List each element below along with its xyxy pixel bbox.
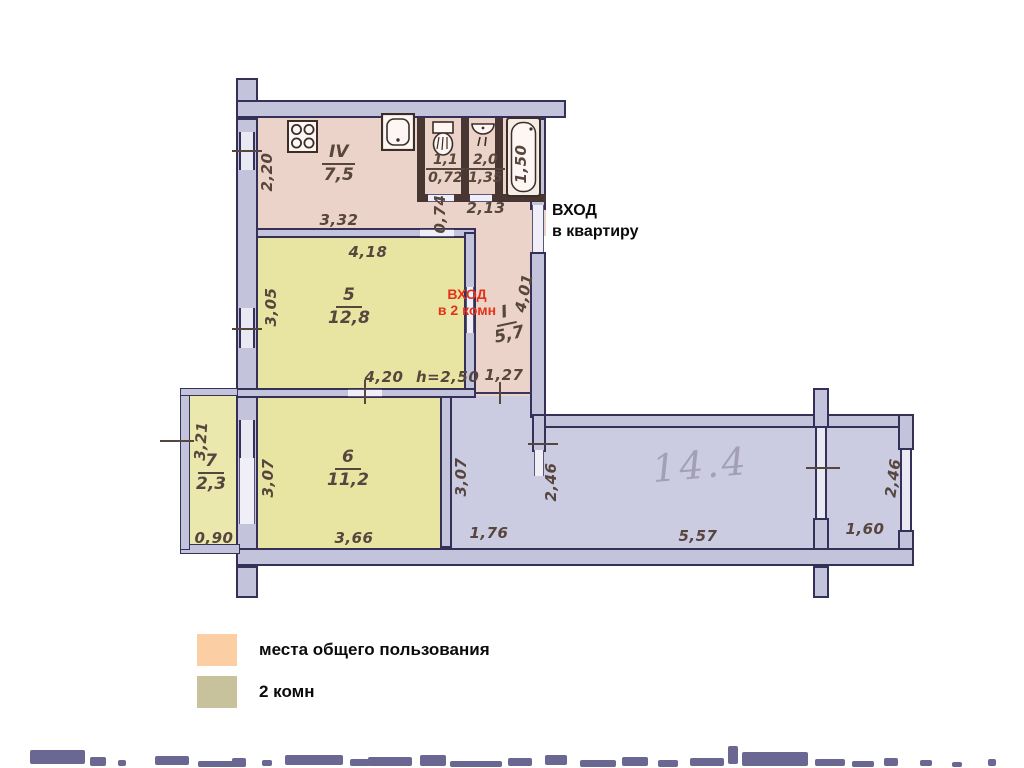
legend-swatch-rooms xyxy=(197,676,237,708)
washroom-label: 2,0 1,35 xyxy=(466,152,505,188)
balcony-block-window xyxy=(239,420,255,458)
room-number: 5 xyxy=(336,286,362,308)
entrance-apartment-line1: ВХОД xyxy=(552,201,639,222)
dim-3-32: 3,32 xyxy=(317,211,361,229)
wc-value-bottom: 0,72 xyxy=(428,170,463,188)
balcony-door xyxy=(239,458,255,524)
entrance-apartment-line2: в квартиру xyxy=(552,222,639,243)
dimension-tick xyxy=(806,467,840,469)
scan-artifact xyxy=(155,756,189,765)
scan-artifact xyxy=(742,752,808,766)
sink-icon xyxy=(381,113,415,151)
room6-label: 6 11,2 xyxy=(327,448,369,491)
wall-balcony-left xyxy=(180,388,190,550)
room-area: 7,5 xyxy=(324,165,354,186)
threshold-corridor-hall xyxy=(474,392,532,394)
dim-1-27: 1,27 xyxy=(482,366,526,384)
scan-artifact xyxy=(580,760,616,767)
room-number: 6 xyxy=(335,448,361,470)
dim-3-66: 3,66 xyxy=(332,529,376,547)
scan-artifact xyxy=(728,746,738,764)
legend-item-common: места общего пользования xyxy=(197,634,490,666)
dim-h-2-50: h=2,50 xyxy=(416,368,472,386)
scan-artifact xyxy=(285,755,343,765)
stove-icon xyxy=(287,120,318,153)
wall-room6-hall xyxy=(440,396,452,548)
legend-label-rooms: 2 комн xyxy=(259,682,314,702)
wc-label: 1,1 0,72 xyxy=(426,152,465,188)
dim-4-20: 4,20 xyxy=(362,368,406,386)
scan-artifact xyxy=(350,759,370,766)
scan-artifact xyxy=(545,755,567,765)
room5-label: 5 12,8 xyxy=(328,286,370,329)
dim-3-07-room6: 3,07 xyxy=(259,456,277,500)
room-area: 12,8 xyxy=(328,308,370,329)
scan-artifact xyxy=(952,762,962,767)
wall-bottom-left-stub xyxy=(236,566,258,598)
wall-right-top-stub xyxy=(898,414,914,450)
legend-swatch-common xyxy=(197,634,237,666)
dim-1-76: 1,76 xyxy=(467,524,511,542)
legend-item-rooms: 2 комн xyxy=(197,676,314,708)
scan-artifact xyxy=(884,758,898,766)
scan-artifact xyxy=(30,750,85,764)
floorplan-scan: IV 7,5 1,1 0,72 2,0 1,35 5 12,8 I 5,7 6 … xyxy=(0,0,1024,768)
room-area: 2,3 xyxy=(196,474,226,495)
wall-hall-bigroom-stub xyxy=(532,414,546,452)
scan-artifact xyxy=(450,761,502,767)
washbasin-icon xyxy=(470,121,496,147)
wall-partition-below-stub xyxy=(813,566,829,598)
dim-3-21: 3,21 xyxy=(190,418,211,463)
dimension-tick xyxy=(232,328,262,330)
dim-5-57: 5,57 xyxy=(676,527,720,545)
washroom-value-bottom: 1,35 xyxy=(468,170,503,188)
handwritten-area-value: 14.4 xyxy=(650,439,750,491)
dim-0-74: 0,74 xyxy=(431,192,449,236)
wall-balcony-top xyxy=(180,388,238,396)
scan-artifact xyxy=(232,758,246,767)
dim-1-60: 1,60 xyxy=(843,520,887,538)
dim-3-07-hall: 3,07 xyxy=(452,455,470,499)
wall-wc-left xyxy=(417,118,425,202)
apartment-entrance-door xyxy=(532,205,544,252)
scan-artifact xyxy=(920,760,932,766)
dim-2-20: 2,20 xyxy=(258,150,276,194)
dim-0-90: 0,90 xyxy=(192,529,236,547)
scan-artifact xyxy=(690,758,724,766)
scan-artifact xyxy=(852,761,874,767)
scan-artifact xyxy=(118,760,126,766)
dim-4-18: 4,18 xyxy=(346,243,390,261)
scan-artifact xyxy=(368,757,412,766)
dimension-tick xyxy=(499,382,501,404)
dim-1-50: 1,50 xyxy=(512,142,530,186)
scan-artifact xyxy=(658,760,678,767)
scan-artifact xyxy=(262,760,272,766)
scan-artifact xyxy=(508,758,532,766)
dim-2-13: 2,13 xyxy=(464,199,508,217)
scan-artifact xyxy=(622,757,648,766)
wc-value-top: 1,1 xyxy=(426,152,465,170)
entrance-rooms-line2: в 2 комн xyxy=(430,302,504,318)
legend-label-common: места общего пользования xyxy=(259,640,490,660)
scan-artifact xyxy=(90,757,106,766)
room-number: IV xyxy=(322,143,355,165)
dimension-tick xyxy=(160,440,194,442)
room-area: 11,2 xyxy=(327,470,369,491)
scan-artifact xyxy=(815,759,845,766)
dim-2-46-left: 2,46 xyxy=(542,460,560,504)
wall-bigroom-top xyxy=(532,414,914,428)
washroom-value-top: 2,0 xyxy=(466,152,505,170)
partition-window xyxy=(815,428,827,518)
kitchen-label: IV 7,5 xyxy=(322,143,355,186)
scan-artifact xyxy=(988,759,996,766)
dimension-tick xyxy=(528,443,558,445)
wall-partition-top-stub xyxy=(813,388,829,428)
dim-3-05: 3,05 xyxy=(262,285,280,329)
wall-bottom xyxy=(236,548,914,566)
entrance-rooms-line1: ВХОД xyxy=(430,286,504,302)
entrance-rooms-note: ВХОД в 2 комн xyxy=(430,286,504,318)
scan-artifact xyxy=(420,755,446,766)
entrance-apartment-note: ВХОД в квартиру xyxy=(552,201,639,243)
